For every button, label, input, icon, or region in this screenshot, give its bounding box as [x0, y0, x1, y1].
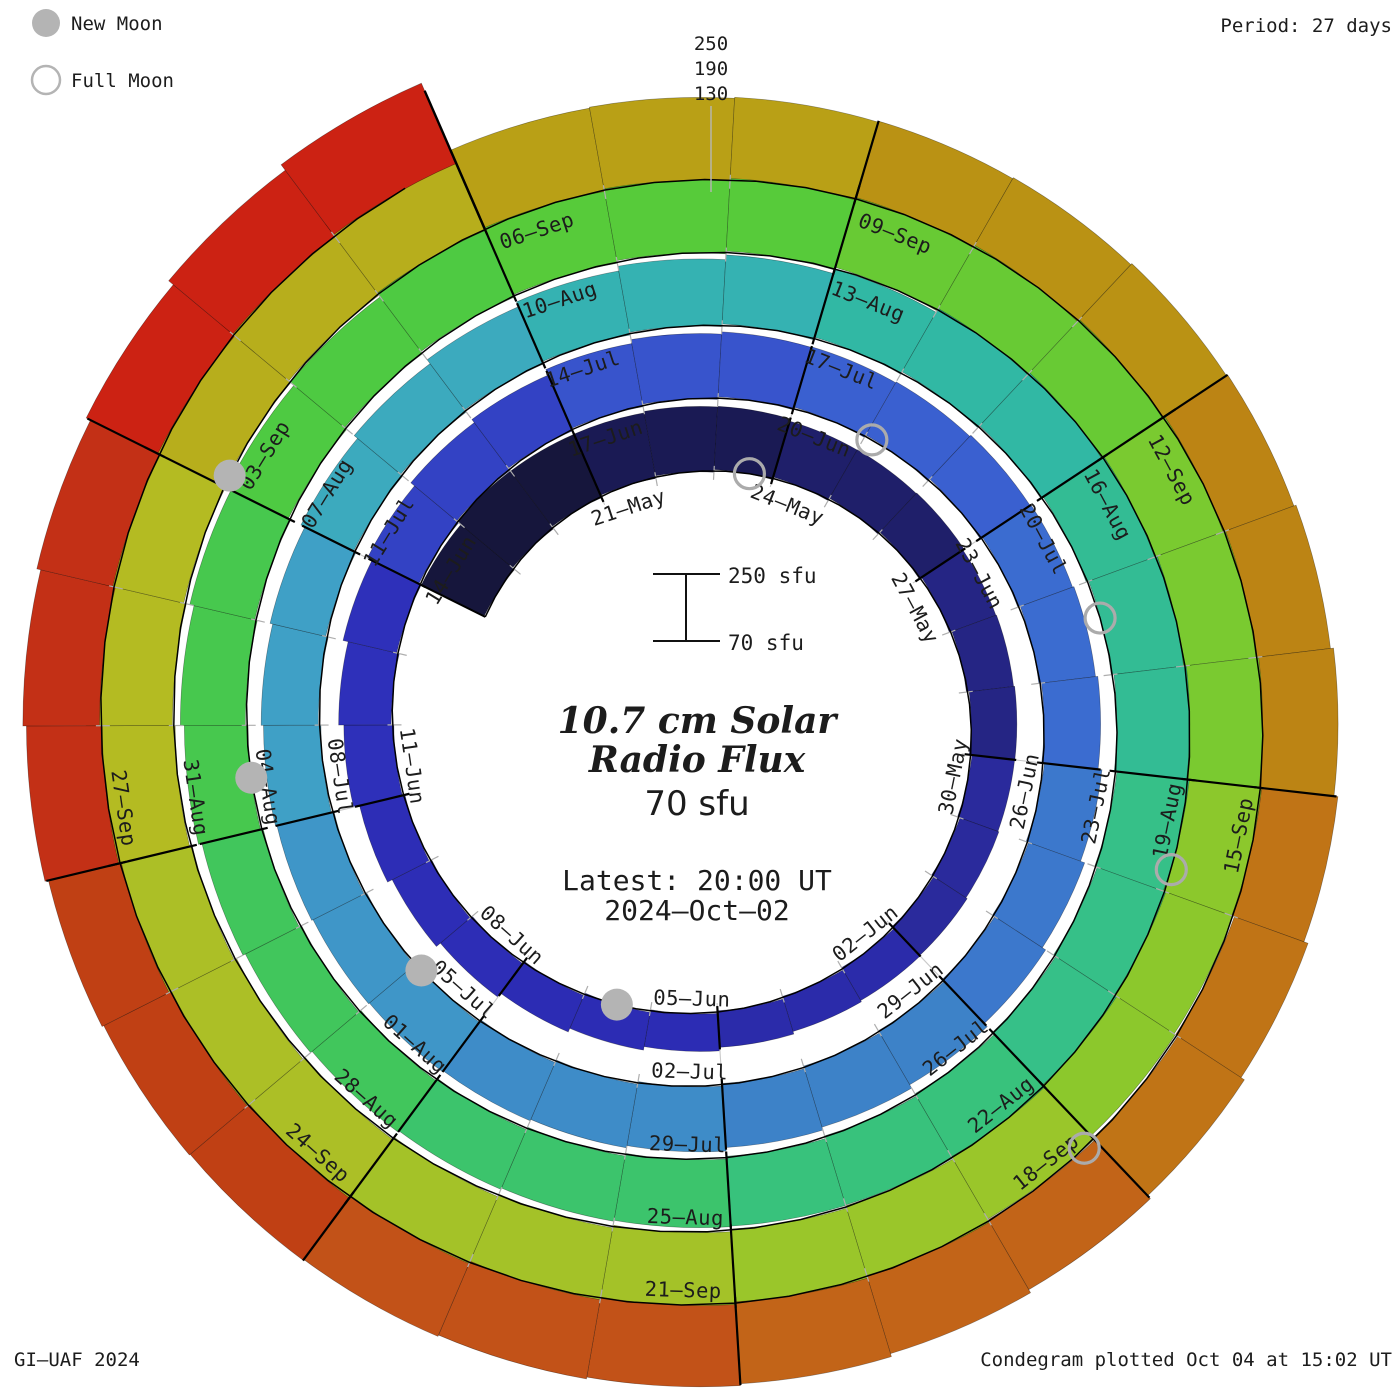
day-tick: [730, 175, 731, 189]
latest-date-label: 2024–Oct–02: [604, 894, 789, 927]
bracket-bottom-label: 70 sfu: [728, 631, 804, 655]
radial-scale-130: 130: [694, 83, 728, 105]
flux-bar: [261, 624, 328, 725]
plotted-timestamp-label: Condegram plotted Oct 04 at 15:02 UT: [980, 1349, 1392, 1371]
latest-time-label: Latest: 20:00 UT: [562, 864, 832, 897]
flux-bar: [969, 686, 1017, 760]
day-tick: [714, 466, 715, 480]
credit-label: GI–UAF 2024: [14, 1349, 140, 1371]
current-flux-value: 70 sfu: [644, 784, 749, 824]
flux-scale-bracket: [653, 574, 720, 641]
new-moon-icon: [32, 9, 60, 37]
flux-bar: [587, 1297, 741, 1387]
chart-title-line1: 10.7 cm Solar: [558, 700, 840, 742]
radial-scale-190: 190: [694, 58, 728, 80]
day-tick: [718, 393, 719, 407]
legend: New Moon Full Moon: [32, 9, 174, 94]
full-moon-icon: [32, 66, 60, 94]
flux-bar: [1186, 657, 1265, 788]
date-label: 21–Sep: [644, 1277, 722, 1303]
date-label: 05–Jun: [653, 985, 731, 1011]
legend-new-moon-label: New Moon: [71, 13, 163, 35]
flux-bar: [1042, 676, 1101, 769]
day-tick: [722, 320, 723, 334]
date-label: 02–Jul: [651, 1058, 729, 1084]
flux-bar: [180, 606, 257, 726]
flux-bar: [644, 1010, 720, 1052]
radial-scale-250: 250: [694, 33, 728, 55]
date-label: 29–Jul: [649, 1131, 727, 1157]
new-moon-marker: [601, 989, 633, 1021]
flux-bar: [631, 334, 721, 405]
new-moon-marker: [235, 762, 267, 794]
bracket-top-label: 250 sfu: [728, 564, 817, 588]
flux-bar: [722, 1069, 823, 1148]
flux-bar: [1259, 648, 1338, 796]
condegram-canvas: 21–May24–May27–May30–May02–Jun05–Jun08–J…: [0, 0, 1400, 1400]
day-tick: [726, 248, 727, 262]
legend-full-moon-label: Full Moon: [71, 70, 174, 92]
flux-bar: [644, 406, 718, 475]
flux-bar: [339, 642, 400, 725]
period-label: Period: 27 days: [1220, 15, 1392, 37]
new-moon-marker: [405, 955, 437, 987]
flux-bar: [618, 259, 726, 332]
flux-bar: [726, 1138, 845, 1226]
chart-title-line2: Radio Flux: [588, 739, 806, 781]
new-moon-marker: [214, 460, 246, 492]
center-annotations: 10.7 cm Solar Radio Flux 70 sfu Latest: …: [558, 700, 840, 927]
flux-bar: [589, 97, 734, 188]
date-label: 25–Aug: [646, 1204, 724, 1230]
